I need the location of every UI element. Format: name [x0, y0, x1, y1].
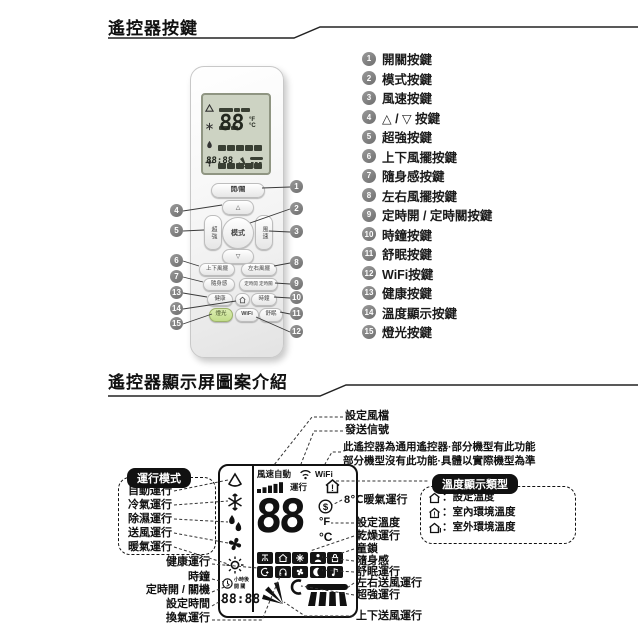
cool-icon [205, 122, 214, 131]
legend-number: 3 [362, 91, 376, 105]
legend-number: 12 [362, 266, 376, 280]
wifi-signal-icon [299, 469, 312, 480]
mode-item-heat: 暖氣運行 [128, 541, 172, 553]
label-vent-run: 換氣運行 [92, 612, 210, 624]
legend-number: 1 [362, 52, 376, 66]
callout-11: 11 [290, 307, 303, 320]
house-outdoor-icon [428, 522, 441, 534]
turbo-button-label: 超強 [210, 226, 216, 240]
legend-number: 7 [362, 169, 376, 183]
label-clock: 時鐘 [92, 571, 210, 583]
legend-item: 3風速按鍵 [362, 89, 432, 106]
temp-type-item: ：室外環境溫度 [428, 522, 516, 534]
temp-type-item: ：設定溫度 [428, 492, 495, 504]
health-button: 健康 [207, 293, 233, 306]
lcd-temp-digits: 88 [254, 493, 303, 539]
svg-text:!: ! [331, 483, 334, 493]
house-status-icon [275, 552, 291, 564]
legend-item: 4△ / ▽ 按鍵 [362, 109, 440, 126]
temp-up-button: △ [222, 200, 254, 215]
legend-number: 11 [362, 247, 376, 261]
callout-6: 6 [170, 254, 183, 267]
label-timer-onoff: 定時開 / 關機 [92, 584, 210, 596]
temp-display-icon [239, 296, 246, 304]
legend-item: 15燈光按鍵 [362, 323, 432, 340]
legend-number: 14 [362, 305, 376, 319]
mini-temp-digits: 88 [219, 113, 244, 135]
dry-mode-icon [225, 513, 245, 533]
legend-item: 1開關按鍵 [362, 50, 432, 67]
callout-13: 13 [170, 286, 183, 299]
fan-speed-button-label: 風速 [261, 226, 267, 240]
legend-number: 13 [362, 286, 376, 300]
legend-label: 時鐘按鍵 [382, 225, 432, 244]
vent-run-icon [292, 566, 308, 578]
note-status-icon [327, 566, 343, 578]
temp-down-button: ▽ [222, 249, 254, 264]
auto-mode-icon [225, 471, 245, 491]
sleep-moon-icon [310, 566, 326, 578]
updown-swing-icon [259, 580, 287, 608]
dry-icon [205, 140, 214, 149]
mini-time-digits: 88:88 [206, 157, 233, 166]
legend-label: 模式按鍵 [382, 69, 432, 88]
legend-number: 4 [362, 110, 376, 124]
callout-8: 8 [290, 256, 303, 269]
legend-item: 14溫度顯示按鍵 [362, 304, 457, 321]
legend-label: 定時開 / 定時關按鍵 [382, 205, 492, 224]
legend-item: 13健康按鍵 [362, 284, 432, 301]
cool-mode-icon [225, 492, 245, 512]
leftright-swing-icon [304, 582, 350, 608]
legend-label: △ / ▽ 按鍵 [382, 108, 440, 127]
callout-7: 7 [170, 270, 183, 283]
child-lock-icon [327, 552, 343, 564]
remote-screen: 88 °F°C 88:88 [201, 93, 271, 175]
dry-run-icon [257, 552, 273, 564]
heat-mode-icon [225, 555, 245, 575]
auto-icon [205, 104, 214, 113]
temp-display-button [235, 293, 250, 306]
house-set-icon [428, 492, 441, 504]
legend-label: 風速按鍵 [382, 88, 432, 107]
label-child-lock: 童鎖 [356, 543, 378, 555]
house-indoor-icon: ! [428, 507, 441, 519]
legend-number: 8 [362, 188, 376, 202]
aux-status-icon [292, 552, 308, 564]
svg-text:!: ! [433, 512, 435, 519]
callout-1: 1 [290, 180, 303, 193]
turbo-button: 超強 [204, 215, 222, 250]
legend-item: 8左右風擺按鍵 [362, 187, 457, 204]
label-health-run: 健康運行 [92, 556, 210, 568]
label-lr-air: 左右送風運行 [356, 577, 422, 589]
mode-item-cool: 冷氣運行 [128, 499, 172, 511]
label-ud-air: 上下送風運行 [356, 610, 422, 622]
lcd-celsius: °C [319, 531, 332, 543]
legend-label: 燈光按鍵 [382, 322, 432, 341]
legend-item: 9定時開 / 定時關按鍵 [362, 206, 492, 223]
legend-item: 2模式按鍵 [362, 70, 432, 87]
lcd-time-digits: 88:88 [221, 593, 253, 606]
mode-item-auto: 自動運行 [128, 485, 172, 497]
label-set-time: 設定時間 [92, 598, 210, 610]
legend-label: 隨身感按鍵 [382, 166, 445, 185]
section1-title: 遙控器按鍵 [108, 14, 198, 39]
house-temp-icon: ! [324, 478, 341, 495]
temp-type-item: ! ：室內環境溫度 [428, 507, 516, 519]
fan-speed-button: 風速 [255, 215, 273, 250]
clock-icon [222, 578, 233, 589]
label-note-line1: 此遙控器為通用遙控器·部分機型有此功能 [343, 442, 536, 454]
callout-3: 3 [290, 225, 303, 238]
legend-number: 9 [362, 208, 376, 222]
label-send-signal: 發送信號 [345, 424, 389, 436]
legend-item: 6上下風擺按鍵 [362, 148, 457, 165]
section2-title: 遙控器顯示屏圖案介紹 [108, 368, 288, 393]
lcd-fahrenheit: °F [319, 517, 330, 528]
legend-label: WiFi按鍵 [382, 264, 433, 283]
light-button: 燈光 [209, 308, 233, 322]
callout-12: 12 [290, 325, 303, 338]
callout-4: 4 [170, 204, 183, 217]
swing-updown-button: 上下風擺 [199, 263, 235, 276]
power-button: 開/關 [211, 183, 265, 198]
legend-item: 5超強按鍵 [362, 128, 432, 145]
display-diagram: 小時後 開 關 88:88 風速自動 WiFi 運行 ! 88 $ °F °C [218, 464, 358, 618]
temp-type-label: ：室外環境溫度 [442, 522, 516, 534]
legend-item: 12WiFi按鍵 [362, 265, 433, 282]
fan-mode-icon [225, 534, 245, 554]
callout-15: 15 [170, 317, 183, 330]
mode-button: 模式 [222, 217, 254, 249]
legend-label: 溫度顯示按鍵 [382, 303, 457, 322]
legend-label: 上下風擺按鍵 [382, 147, 457, 166]
legend-label: 左右風擺按鍵 [382, 186, 457, 205]
lcd-on-off: 開 關 [234, 585, 245, 590]
callout-2: 2 [290, 202, 303, 215]
manual-page: 遙控器按鍵 88 °F°C 88:88 [0, 0, 640, 640]
legend-number: 10 [362, 227, 376, 241]
legend-number: 15 [362, 325, 376, 339]
legend-label: 健康按鍵 [382, 283, 432, 302]
legend-number: 6 [362, 149, 376, 163]
clock-button: 時鐘 [251, 293, 277, 306]
mini-units: °F°C [249, 117, 256, 129]
mode-icon-column [220, 466, 254, 612]
label-dry-run: 乾燥運行 [356, 530, 400, 542]
legend-item: 10時鐘按鍵 [362, 226, 432, 243]
lcd-hours-after: 小時後 [234, 578, 249, 583]
callout-14: 14 [170, 302, 183, 315]
label-turbo-run: 超強運行 [356, 589, 400, 601]
health-run-icon [257, 566, 273, 578]
label-note-line2: 部分機型沒有此功能·具體以實際機型為準 [343, 456, 536, 468]
mini-swing-icons [237, 155, 265, 174]
swing-leftright-button: 左右風擺 [241, 263, 277, 276]
lcd-fan-speed-text: 風速自動 [257, 470, 291, 479]
ifeel-person-icon [310, 552, 326, 564]
legend-number: 2 [362, 71, 376, 85]
legend-number: 5 [362, 130, 376, 144]
timer-button: 定時開 定時關 [239, 278, 278, 291]
mode-item-dry: 除濕運行 [128, 513, 172, 525]
legend-item: 7隨身感按鍵 [362, 167, 445, 184]
legend-label: 超強按鍵 [382, 127, 432, 146]
sleep-button: 舒眠 [259, 308, 283, 322]
wifi-button: WiFi [235, 308, 259, 322]
turbo-swirl-icon [290, 578, 304, 596]
mode-item-fan: 送風運行 [128, 527, 172, 539]
remote-illustration: 88 °F°C 88:88 開/關 △ 超強 模式 風速 ▽ 上下風擺 左右風擺… [190, 66, 284, 358]
temp-type-label: ：室內環境溫度 [442, 507, 516, 519]
legend-label: 舒眠按鍵 [382, 244, 432, 263]
temp-type-label: ：設定溫度 [442, 492, 495, 504]
heat8-icon: $ [318, 499, 333, 514]
callout-5: 5 [170, 224, 183, 237]
label-set-temp: 設定溫度 [356, 517, 400, 529]
status-icon-grid [257, 552, 343, 578]
callout-10: 10 [290, 291, 303, 304]
label-fan-gear: 設定風檔 [345, 410, 389, 422]
legend-label: 開關按鍵 [382, 49, 432, 68]
ifeel-button: 隨身感 [203, 278, 235, 291]
label-heat8: 8℃暖氣運行 [344, 494, 407, 506]
svg-text:$: $ [323, 502, 329, 513]
headset-status-icon [275, 566, 291, 578]
callout-9: 9 [290, 277, 303, 290]
legend-item: 11舒眠按鍵 [362, 245, 432, 262]
